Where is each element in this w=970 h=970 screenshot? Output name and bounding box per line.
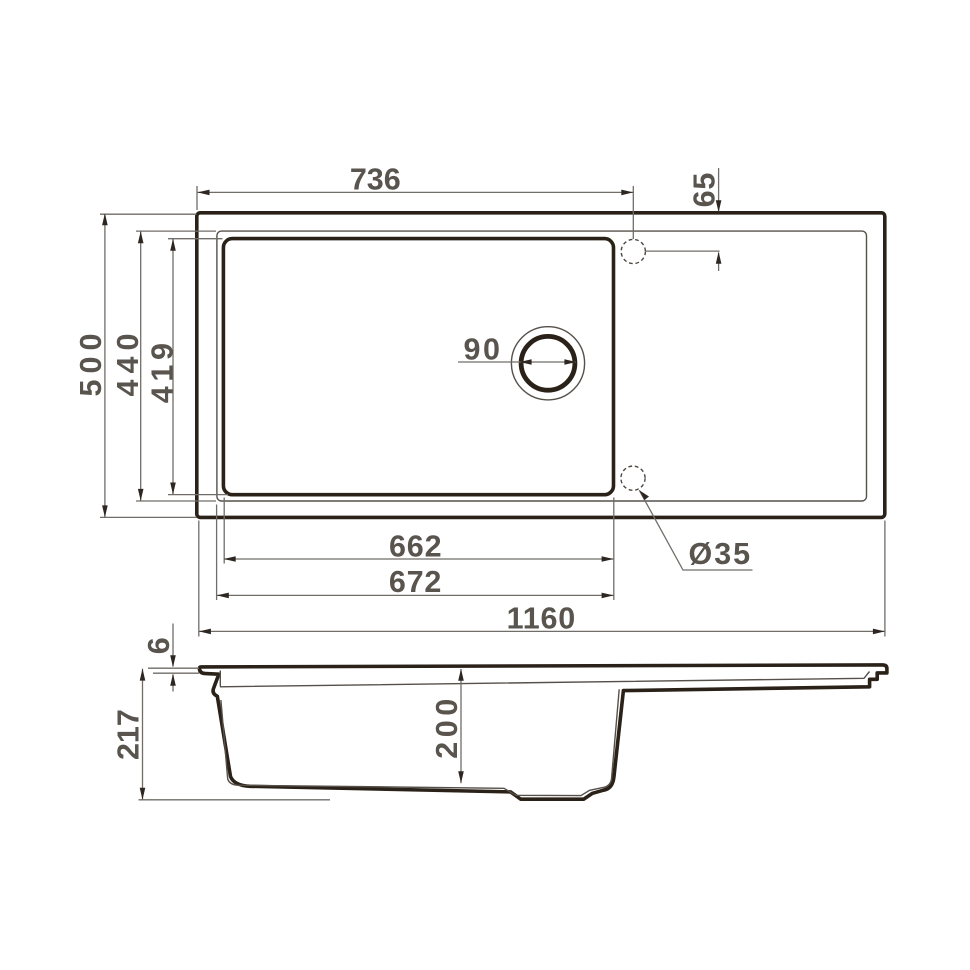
svg-text:Ø35: Ø35 (688, 537, 752, 571)
svg-text:672: 672 (389, 565, 442, 599)
svg-text:419: 419 (146, 338, 180, 403)
svg-text:500: 500 (74, 328, 108, 397)
svg-text:200: 200 (430, 694, 464, 758)
svg-text:65: 65 (688, 172, 722, 208)
svg-text:90: 90 (464, 333, 503, 367)
svg-text:440: 440 (111, 328, 145, 397)
svg-text:736: 736 (350, 162, 401, 196)
svg-text:1160: 1160 (507, 602, 576, 636)
svg-text:217: 217 (112, 709, 146, 760)
svg-text:6: 6 (142, 637, 176, 654)
svg-text:662: 662 (389, 529, 442, 563)
